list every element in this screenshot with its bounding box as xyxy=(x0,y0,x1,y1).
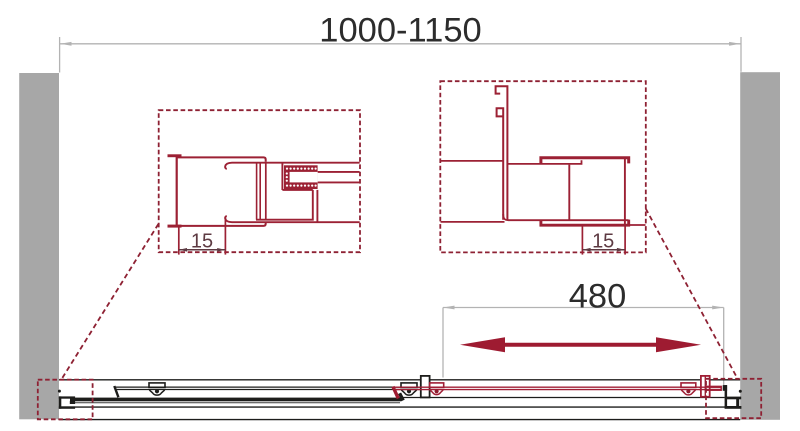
svg-text:15: 15 xyxy=(191,231,213,253)
svg-text:15: 15 xyxy=(592,231,614,253)
svg-text:1000-1150: 1000-1150 xyxy=(319,11,481,49)
svg-text:480: 480 xyxy=(569,277,627,315)
